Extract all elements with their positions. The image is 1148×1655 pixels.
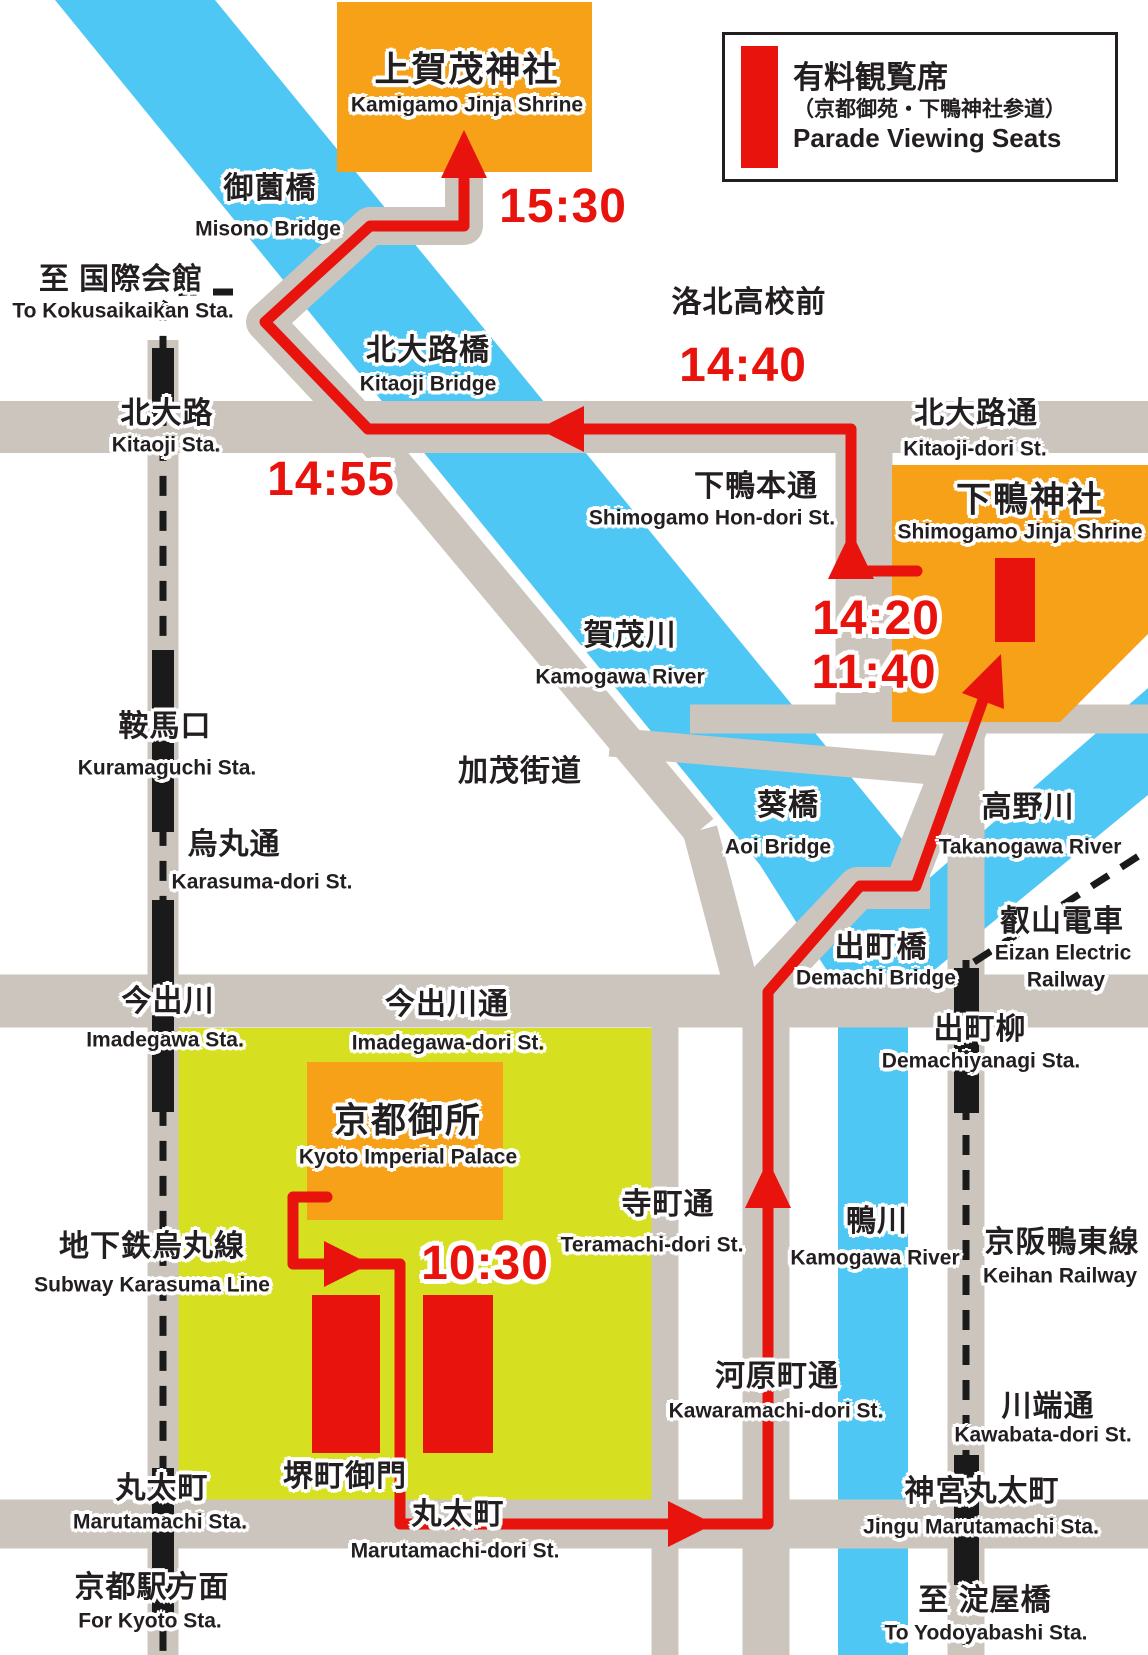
label-time-1530: 15:30: [499, 183, 627, 231]
label-kamogawa-river-2: 鴨川: [846, 1207, 908, 1237]
label-yodoyabashi: 至 淀屋橋: [918, 1586, 1051, 1616]
label-subway-karasuma: 地下鉄烏丸線: [59, 1232, 245, 1262]
label-shimogamo-hondori: 下鴨本通: [694, 472, 818, 502]
label-shimogamo-shrine: 下鴨神社: [956, 483, 1104, 518]
label-imadegawa-sta-en: Imadegawa Sta.: [86, 1030, 244, 1051]
label-aoi-bridge-en: Aoi Bridge: [725, 837, 831, 858]
label-karasuma-dori: 烏丸通: [188, 830, 281, 860]
label-kyoto-sta-homen-en: For Kyoto Sta.: [78, 1611, 222, 1632]
label-kamigamo-shrine: 上賀茂神社: [374, 53, 559, 88]
label-kyoto-gosho-en: Kyoto Imperial Palace: [299, 1147, 517, 1168]
label-teramachi-dori: 寺町通: [622, 1190, 715, 1220]
label-time-1440: 14:40: [679, 342, 807, 390]
label-demachi-bridge: 出町橋: [835, 933, 928, 963]
label-subway-karasuma-en: Subway Karasuma Line: [34, 1275, 270, 1296]
label-takanogawa-river-en: Takanogawa River: [939, 837, 1122, 858]
label-aoi-bridge: 葵橋: [757, 791, 819, 821]
label-kamigamo-shrine-en: Kamigamo Jinja Shrine: [351, 95, 583, 116]
legend-title: 有料観覧席: [793, 60, 1066, 96]
label-teramachi-dori-en: Teramachi-dori St.: [561, 1235, 744, 1256]
legend-seat-swatch: [741, 46, 778, 168]
label-imadegawa-dori: 今出川通: [385, 990, 509, 1020]
label-marutamachi-dori-en: Marutamachi-dori St.: [351, 1541, 560, 1562]
label-karasuma-dori-en: Karasuma-dori St.: [172, 872, 353, 893]
label-kyoto-sta-homen: 京都駅方面: [75, 1573, 230, 1603]
label-misono-bridge-en: Misono Bridge: [195, 219, 341, 240]
map-labels-layer: 上賀茂神社Kamigamo Jinja Shrine15:30御薗橋Misono…: [0, 0, 1148, 1655]
label-kawabata-dori: 川端通: [1002, 1392, 1095, 1422]
label-keihan-railway: 京阪鴨東線: [985, 1228, 1140, 1258]
label-kitaoji-sta-en: Kitaoji Sta.: [112, 435, 221, 456]
label-demachi-bridge-en: Demachi Bridge: [796, 968, 956, 989]
label-keihan-railway-en: Keihan Railway: [983, 1266, 1137, 1287]
label-kawaramachi-dori-en: Kawaramachi-dori St.: [669, 1401, 884, 1422]
legend-caption: Parade Viewing Seats: [793, 123, 1066, 154]
label-shimogamo-hondori-en: Shimogamo Hon-dori St.: [589, 508, 835, 529]
label-eizan-railway: 叡山電車: [1000, 907, 1124, 937]
label-kyoto-gosho: 京都御所: [334, 1104, 482, 1139]
label-takanogawa-river: 高野川: [982, 793, 1075, 823]
parade-route-map: 上賀茂神社Kamigamo Jinja Shrine15:30御薗橋Misono…: [0, 0, 1148, 1655]
legend-text: 有料観覧席 （京都御苑・下鴨神社参道） Parade Viewing Seats: [793, 60, 1066, 154]
label-kitaoji-bridge: 北大路橋: [366, 336, 490, 366]
label-jingu-marutamachi-sta: 神宮丸太町: [905, 1477, 1060, 1507]
label-sakaimachi-gomon: 堺町御門: [283, 1462, 407, 1492]
label-rakuhoku-koko-mae: 洛北高校前: [672, 288, 827, 318]
label-imadegawa-dori-en: Imadegawa-dori St.: [352, 1033, 545, 1054]
label-kuramaguchi-sta-en: Kuramaguchi Sta.: [78, 758, 257, 779]
label-kitaoji-bridge-en: Kitaoji Bridge: [360, 374, 497, 395]
label-shimogamo-shrine-en: Shimogamo Jinja Shrine: [897, 522, 1142, 543]
label-time-1420: 14:20: [812, 595, 940, 643]
label-misono-bridge: 御薗橋: [224, 174, 317, 204]
label-kitaoji-dori: 北大路通: [914, 399, 1038, 429]
label-kamo-kaido: 加茂街道: [458, 757, 582, 787]
label-eizan-railway-en1: Eizan Electric: [995, 943, 1132, 964]
label-marutamachi-sta: 丸太町: [116, 1474, 209, 1504]
label-time-1455: 14:55: [267, 456, 395, 504]
label-kitaoji-sta: 北大路: [121, 399, 214, 429]
label-kokusaikaikan-en: To Kokusaikaikan Sta.: [12, 301, 233, 322]
label-demachiyanagi-sta: 出町柳: [934, 1015, 1027, 1045]
label-jingu-marutamachi-sta-en: Jingu Marutamachi Sta.: [863, 1517, 1099, 1538]
label-time-1140: 11:40: [811, 649, 936, 697]
label-kamogawa-river-en: Kamogawa River: [535, 667, 704, 688]
label-kawabata-dori-en: Kawabata-dori St.: [954, 1425, 1131, 1446]
label-kamogawa-river: 賀茂川: [584, 621, 677, 651]
label-kuramaguchi-sta: 鞍馬口: [119, 712, 212, 742]
label-kokusaikaikan: 至 国際会館: [39, 265, 203, 295]
label-marutamachi-sta-en: Marutamachi Sta.: [73, 1512, 247, 1533]
label-kawaramachi-dori: 河原町通: [715, 1362, 839, 1392]
label-yodoyabashi-en: To Yodoyabashi Sta.: [884, 1623, 1087, 1644]
label-kitaoji-dori-en: Kitaoji-dori St.: [903, 439, 1047, 460]
label-kamogawa-river-2-en: Kamogawa River: [790, 1248, 959, 1269]
label-eizan-railway-en2: Railway: [1027, 970, 1105, 991]
legend: 有料観覧席 （京都御苑・下鴨神社参道） Parade Viewing Seats: [722, 32, 1118, 182]
label-time-1030: 10:30: [421, 1240, 549, 1288]
label-demachiyanagi-sta-en: Demachiyanagi Sta.: [882, 1051, 1080, 1072]
label-marutamachi-dori: 丸太町: [412, 1500, 505, 1530]
legend-subtitle: （京都御苑・下鴨神社参道）: [793, 96, 1066, 123]
label-imadegawa-sta: 今出川: [122, 987, 215, 1017]
